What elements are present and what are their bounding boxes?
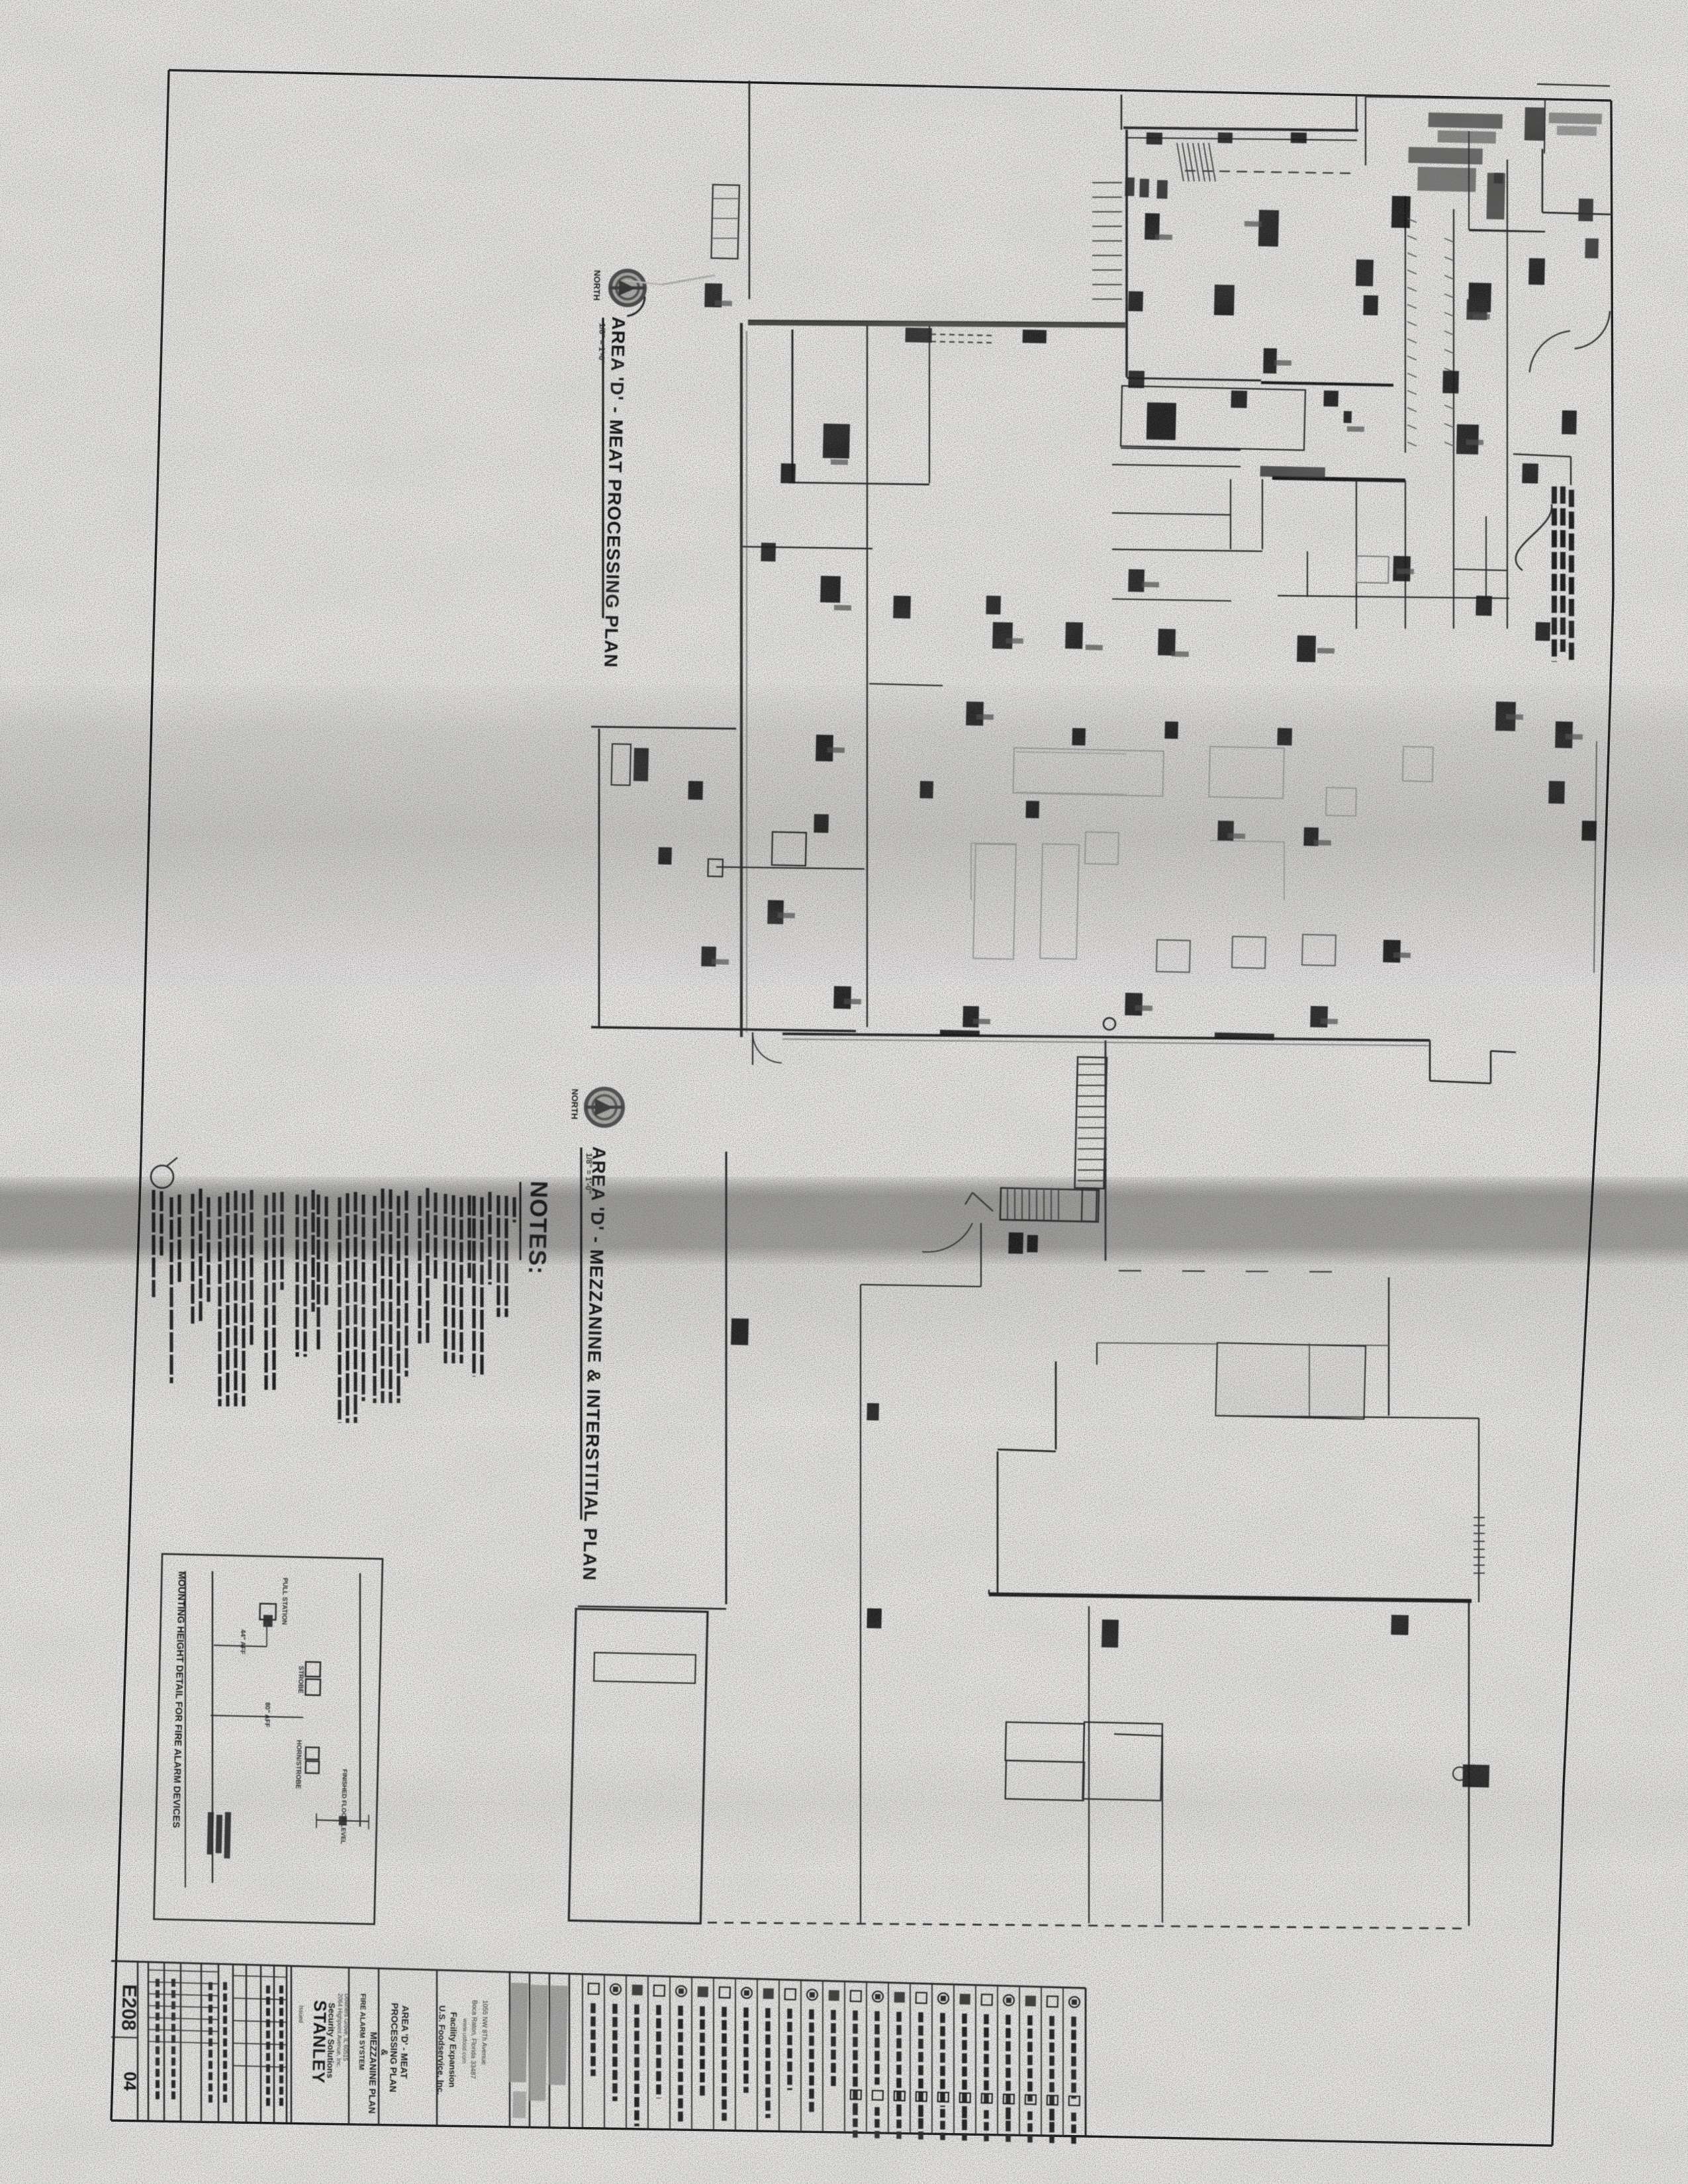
svg-text:E208: E208 xyxy=(117,1984,140,2031)
svg-text:HORN/STROBE: HORN/STROBE xyxy=(294,1740,303,1789)
svg-text:PROCESSING PLAN: PROCESSING PLAN xyxy=(388,2003,400,2093)
svg-text:NOTES:: NOTES: xyxy=(524,1181,553,1275)
svg-text:80" AFF: 80" AFF xyxy=(263,1702,271,1727)
svg-text:1055 NW 8Th Avenue: 1055 NW 8Th Avenue xyxy=(480,2000,489,2065)
svg-text:Facility Expansion: Facility Expansion xyxy=(447,2012,459,2088)
svg-text:Issued: Issued xyxy=(297,2005,305,2023)
svg-text:04: 04 xyxy=(120,2071,140,2091)
svg-text:STROBE: STROBE xyxy=(297,1666,305,1694)
svg-text:1/8" = 1'-0": 1/8" = 1'-0" xyxy=(584,1153,594,1194)
svg-text:44" AFF: 44" AFF xyxy=(238,1629,246,1655)
svg-text:1/8" = 1'-0": 1/8" = 1'-0" xyxy=(597,323,607,364)
svg-text:NORTH: NORTH xyxy=(569,1089,580,1120)
svg-text:PULL STATION: PULL STATION xyxy=(280,1578,289,1625)
svg-text:NORTH: NORTH xyxy=(592,270,602,301)
svg-text:www.usfood.com: www.usfood.com xyxy=(461,2018,469,2064)
svg-text:AREA 'D' - MEAT: AREA 'D' - MEAT xyxy=(399,2005,411,2079)
svg-text:Security Solutions: Security Solutions xyxy=(325,2003,337,2078)
svg-text:&: & xyxy=(379,2049,390,2056)
svg-text:MEZZANINE PLAN: MEZZANINE PLAN xyxy=(367,2032,379,2114)
svg-text:U.S. Foodservice, Inc.: U.S. Foodservice, Inc. xyxy=(436,2005,447,2095)
